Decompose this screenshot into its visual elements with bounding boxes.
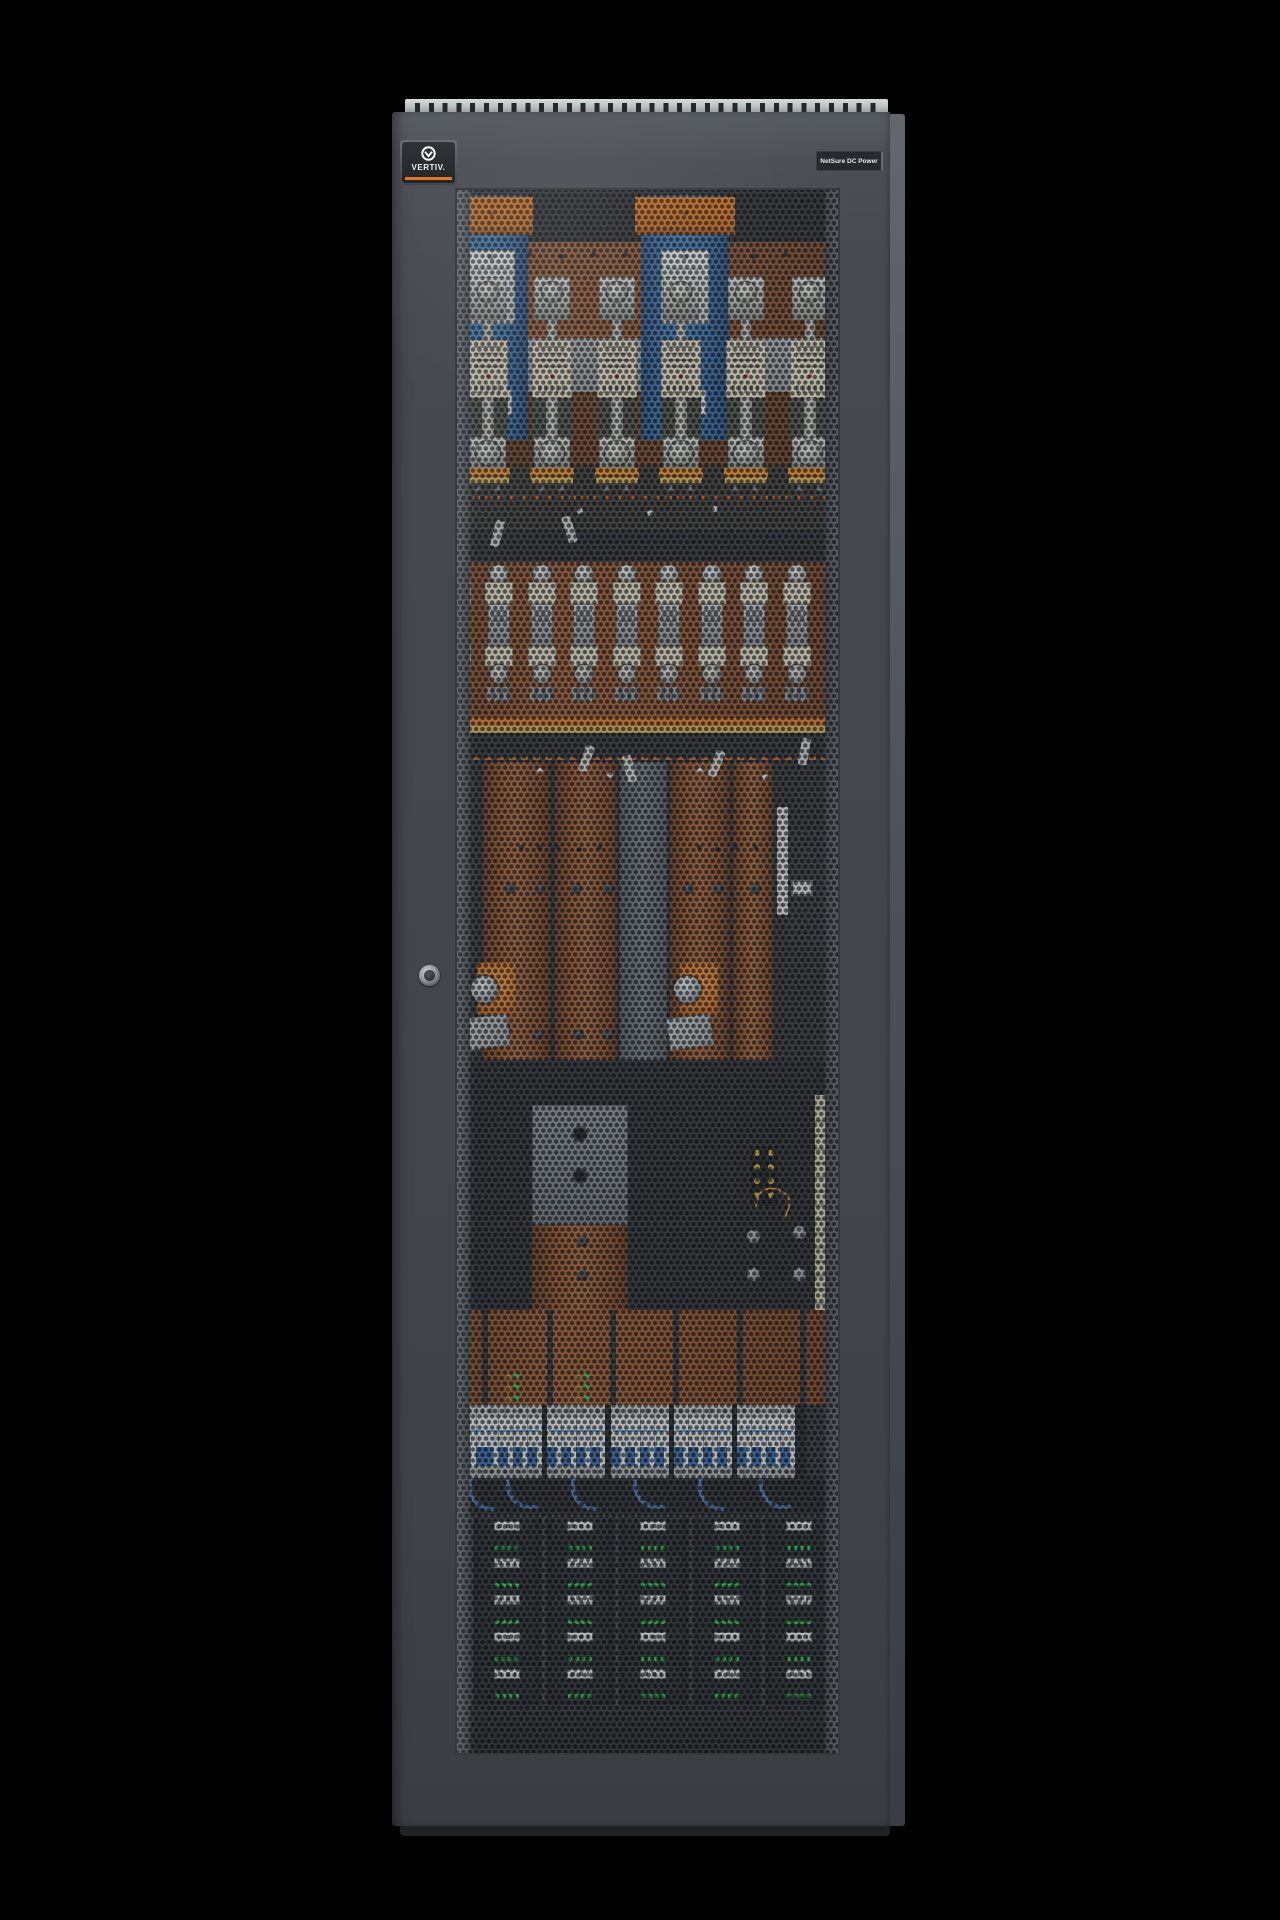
terminal-dot — [754, 1164, 760, 1170]
interior-band — [457, 530, 838, 562]
cover-hole — [574, 1128, 586, 1140]
distribution-fuse — [482, 565, 516, 707]
terminal-bolt — [816, 485, 823, 492]
fuse-blade — [612, 320, 622, 342]
panel-dot — [591, 252, 596, 257]
fuse-holder-top — [613, 582, 641, 604]
bracket — [791, 880, 813, 896]
rectifier-module — [625, 1592, 681, 1628]
fuse-lower-blade — [532, 398, 572, 442]
rectifier-module — [625, 1518, 681, 1554]
rectifier-handle — [494, 1558, 520, 1568]
fuse-holder-bottom — [528, 646, 556, 666]
fuse-blade — [741, 320, 751, 342]
rectifier-module — [479, 1666, 535, 1702]
panel-dot — [577, 847, 582, 852]
battery-terminal-bracket — [463, 1013, 511, 1051]
terminal-dot — [768, 1178, 774, 1184]
indicator-cluster — [506, 1372, 511, 1405]
interior-band — [457, 733, 838, 757]
rectifier-module — [699, 1555, 755, 1591]
rail-holes — [415, 103, 878, 112]
distribution-fuse — [652, 565, 686, 707]
panel-dot — [733, 845, 738, 850]
busbar-bolt — [577, 1236, 588, 1247]
fuse-top-screw — [788, 565, 806, 583]
panel-dot — [753, 845, 758, 850]
terminal-bolt — [752, 485, 759, 492]
fuse-terminal — [785, 687, 809, 701]
screw-speck — [762, 774, 768, 780]
breaker-group — [674, 1405, 732, 1478]
model-label: NetSure DC Power — [816, 151, 883, 171]
rack-rail-right — [825, 190, 838, 1753]
rectifier-handle — [714, 1595, 740, 1605]
breaker-group — [737, 1405, 795, 1478]
distribution-fuse — [567, 565, 601, 707]
fuse-terminal-lip — [596, 477, 638, 483]
terminal-bolt — [796, 485, 803, 492]
panel-dot — [751, 254, 756, 259]
rectifier-led-strip — [639, 1619, 667, 1625]
fuse-terminal — [615, 687, 639, 701]
terminal-bolt — [494, 485, 501, 492]
distribution-fuse — [610, 565, 644, 707]
rectifier-led-strip — [713, 1582, 741, 1588]
busbar-bolt — [683, 883, 694, 894]
fuse-terminal-lip — [725, 477, 767, 483]
fuse-body — [573, 604, 595, 646]
rectifier-handle — [640, 1595, 666, 1605]
rectifier-handle — [640, 1632, 666, 1642]
fuse-lower-blade — [597, 398, 637, 442]
rectifier-led-strip — [566, 1693, 594, 1699]
rectifier-module — [552, 1518, 608, 1554]
screw-speck — [577, 508, 583, 514]
fuse-label — [726, 340, 766, 398]
cabinet-base — [400, 1826, 890, 1836]
fuse-holder-top — [528, 582, 556, 604]
panel-dot — [715, 847, 720, 852]
terminal-bolt — [623, 485, 630, 492]
nh-fuse — [724, 277, 768, 497]
distribution-fuse — [525, 565, 559, 707]
panel-dot — [519, 845, 524, 850]
shunt-orange-cap — [635, 197, 735, 235]
rectifier-handle — [640, 1669, 666, 1679]
fuse-lower-blade — [468, 398, 508, 442]
rectifier-module — [552, 1666, 608, 1702]
fuse-label — [661, 340, 701, 398]
terminal-dot — [754, 1150, 760, 1156]
rectifier-module — [699, 1666, 755, 1702]
fuse-label — [468, 340, 508, 398]
fuse-blade — [676, 320, 686, 342]
fuse-bottom-screw — [575, 665, 593, 683]
rectifier-module — [552, 1629, 608, 1665]
nh-fuse — [530, 277, 574, 497]
rectifier-led-strip — [639, 1693, 667, 1699]
rectifier-module — [552, 1555, 608, 1591]
terminal-bolt — [603, 485, 610, 492]
indicator-cluster — [576, 1372, 581, 1405]
rectifier-handle — [786, 1558, 812, 1568]
fuse-terminal — [530, 687, 554, 701]
battery-terminal-bolt — [674, 976, 701, 1003]
rack-rail-left — [457, 190, 470, 1753]
cable-channel — [620, 762, 667, 1060]
rectifier-led-strip — [785, 1545, 813, 1551]
fuse-terminal — [572, 687, 596, 701]
door-mesh-window — [457, 190, 838, 1753]
fuse-body — [658, 604, 680, 646]
terminal-bolt — [732, 485, 739, 492]
badge-accent-bar — [405, 177, 452, 180]
fuse-top-screw — [618, 565, 636, 583]
rectifier-led-strip — [639, 1582, 667, 1588]
breaker-group — [547, 1405, 605, 1478]
fuse-lower-blade — [661, 398, 701, 442]
busbar-divider — [482, 1310, 488, 1405]
fuse-holder-top — [698, 582, 726, 604]
fuse-holder-bottom — [740, 646, 768, 666]
fuse-label — [790, 340, 830, 398]
rectifier-led-strip — [566, 1582, 594, 1588]
rectifier-handle — [567, 1521, 593, 1531]
fuse-lower-blade — [790, 398, 830, 442]
fuse-holder-bottom — [783, 646, 811, 666]
cover-hole — [574, 1170, 586, 1182]
rectifier-module — [699, 1518, 755, 1554]
distribution-fuse — [780, 565, 814, 707]
busbar-bolt — [577, 1270, 588, 1281]
battery-terminal-bracket — [666, 1013, 714, 1051]
nh-fuse — [466, 277, 510, 497]
fuse-terminal-base — [595, 468, 639, 477]
cabinet-side-panel — [888, 114, 905, 1826]
rectifier-handle — [640, 1558, 666, 1568]
panel-dot — [597, 845, 602, 850]
rectifier-led-strip — [713, 1545, 741, 1551]
rectifier-led-strip — [566, 1619, 594, 1625]
fuse-bottom-screw — [703, 665, 721, 683]
nh-fuse — [595, 277, 639, 497]
rectifier-handle — [714, 1632, 740, 1642]
panel-dot — [559, 254, 564, 259]
wire-run — [461, 757, 833, 760]
rectifier-handle — [640, 1521, 666, 1531]
rectifier-led-strip — [493, 1693, 521, 1699]
screw-speck — [537, 768, 543, 774]
fuse-top-screw — [575, 565, 593, 583]
busbar-divider — [547, 1310, 553, 1405]
fuse-bottom-screw — [533, 665, 551, 683]
fuse-label — [597, 340, 637, 398]
busbar-bolt — [750, 883, 761, 894]
fuse-top-screw — [745, 565, 763, 583]
panel-screw — [747, 1230, 760, 1243]
fuse-bottom-screw — [669, 441, 693, 465]
fuse-holder-bottom — [655, 646, 683, 666]
fuse-blade — [805, 320, 815, 342]
fuse-holder-top — [485, 582, 513, 604]
fuse-bottom-screw — [734, 441, 758, 465]
rectifier-led-strip — [566, 1545, 594, 1551]
panel-dot — [537, 845, 542, 850]
rectifier-module — [625, 1629, 681, 1665]
rectifier-led-strip — [639, 1545, 667, 1551]
fuse-terminal — [487, 687, 511, 701]
scene: VERTIV. NetSure DC Power — [0, 0, 1280, 1920]
rectifier-led-strip — [785, 1693, 813, 1699]
rectifier-led-strip — [493, 1582, 521, 1588]
rectifier-handle — [786, 1669, 812, 1679]
fuse-top-screw — [607, 282, 627, 302]
breaker-group — [484, 1405, 542, 1478]
rectifier-handle — [494, 1595, 520, 1605]
fuse-holder-top — [783, 582, 811, 604]
cabinet-interior — [457, 190, 838, 1753]
vertical-busbar — [555, 762, 617, 1060]
rectifier-handle — [786, 1595, 812, 1605]
rectifier-handle — [494, 1521, 520, 1531]
panel-dot — [555, 845, 560, 850]
fuse-holder-bottom — [698, 646, 726, 666]
fuse-terminal-base — [659, 468, 703, 477]
busbar-bolt — [535, 883, 546, 894]
rectifier-led-strip — [785, 1619, 813, 1625]
fuse-body — [743, 604, 765, 646]
fuse-bottom-screw — [540, 441, 564, 465]
fuse-blade — [547, 320, 557, 342]
fuse-holder-top — [740, 582, 768, 604]
fuse-terminal-base — [530, 468, 574, 477]
fuse-blade — [483, 320, 493, 342]
busbar-divider — [737, 1310, 743, 1405]
fuse-top-screw — [736, 282, 756, 302]
breaker-group — [611, 1405, 669, 1478]
rectifier-handle — [494, 1632, 520, 1642]
busbar-bolt — [571, 883, 582, 894]
screw-speck — [607, 772, 613, 778]
busbar-divider — [673, 1310, 679, 1405]
rectifier-handle — [786, 1521, 812, 1531]
terminal-dot — [768, 1150, 774, 1156]
rectifier-module — [771, 1592, 827, 1628]
terminal-bolt — [687, 485, 694, 492]
terminal-bolt — [558, 485, 565, 492]
screw-speck — [647, 510, 653, 516]
shelf-divider — [542, 1515, 546, 1705]
busbar-divider — [800, 1310, 806, 1405]
din-rail — [777, 807, 788, 915]
vertiv-logo-icon — [421, 146, 436, 161]
rectifier-handle — [714, 1669, 740, 1679]
fuse-top-screw — [542, 282, 562, 302]
busbar-bolt — [573, 1029, 584, 1040]
fuse-bottom-screw — [660, 665, 678, 683]
fuse-body — [531, 604, 553, 646]
rectifier-module — [699, 1592, 755, 1628]
fuse-body — [616, 604, 638, 646]
fuse-terminal — [657, 687, 681, 701]
panel-screw — [793, 1268, 806, 1281]
rectifier-handle — [786, 1632, 812, 1642]
vertiv-wordmark: VERTIV. — [412, 163, 446, 172]
shelf-divider — [689, 1515, 693, 1705]
busbar-bolt — [505, 883, 516, 894]
fuse-terminal-base — [724, 468, 768, 477]
panel-screw — [747, 1268, 760, 1281]
busbar-bolt — [603, 883, 614, 894]
rectifier-module — [479, 1592, 535, 1628]
rectifier-led-strip — [713, 1619, 741, 1625]
door-lock — [419, 965, 440, 986]
rectifier-led-strip — [493, 1545, 521, 1551]
panel-dot — [697, 845, 702, 850]
distribution-fuse — [695, 565, 729, 707]
bus-link-strip — [457, 718, 838, 726]
terminal-dot — [754, 1178, 760, 1184]
rectifier-handle — [494, 1669, 520, 1679]
rectifier-module — [771, 1666, 827, 1702]
panel-dot — [623, 252, 628, 257]
bus-link-strip — [457, 726, 838, 733]
fuse-holder-top — [655, 582, 683, 604]
fuse-bottom-screw — [490, 665, 508, 683]
terminal-bolt — [474, 485, 481, 492]
rectifier-module — [479, 1629, 535, 1665]
rectifier-led-strip — [566, 1656, 594, 1662]
fuse-top-screw — [800, 282, 820, 302]
fuse-bottom-screw — [788, 665, 806, 683]
rectifier-module — [771, 1629, 827, 1665]
screw-speck — [712, 506, 718, 512]
fuse-holder-bottom — [485, 646, 513, 666]
panel-screw — [793, 1226, 806, 1239]
model-label-text: NetSure DC Power — [820, 158, 877, 165]
rectifier-module — [552, 1592, 608, 1628]
interior-bottom — [457, 1705, 838, 1753]
busbar-bolt — [533, 1029, 544, 1040]
rectifier-led-strip — [713, 1693, 741, 1699]
fuse-body — [488, 604, 510, 646]
fuse-terminal-lip — [467, 477, 509, 483]
rectifier-handle — [567, 1558, 593, 1568]
rectifier-module — [625, 1666, 681, 1702]
fuse-top-screw — [490, 565, 508, 583]
rectifier-module — [699, 1629, 755, 1665]
rectifier-module — [479, 1555, 535, 1591]
terminal-dot — [768, 1164, 774, 1170]
rectifier-module — [479, 1518, 535, 1554]
fuse-holder-bottom — [613, 646, 641, 666]
shelf-divider — [615, 1515, 619, 1705]
fuse-terminal — [742, 687, 766, 701]
fuse-terminal-lip — [531, 477, 573, 483]
terminal-bolt — [667, 485, 674, 492]
fuse-body — [701, 604, 723, 646]
fuse-terminal-lip — [660, 477, 702, 483]
rectifier-led-strip — [493, 1619, 521, 1625]
rectifier-module — [625, 1555, 681, 1591]
fuse-bottom-screw — [618, 665, 636, 683]
fuse-bottom-screw — [745, 665, 763, 683]
rectifier-module — [771, 1555, 827, 1591]
battery-terminal-bolt — [471, 976, 498, 1003]
rectifier-led-strip — [713, 1656, 741, 1662]
rectifier-handle — [567, 1632, 593, 1642]
fuse-top-screw — [671, 282, 691, 302]
fuse-top-screw — [703, 565, 721, 583]
busbar-bolt — [603, 1029, 614, 1040]
fuse-holder-bottom — [570, 646, 598, 666]
rectifier-led-strip — [785, 1656, 813, 1662]
nh-fuse — [659, 277, 703, 497]
vertiv-badge: VERTIV. — [400, 140, 457, 185]
fuse-bottom-screw — [605, 441, 629, 465]
fuse-top-screw — [478, 282, 498, 302]
rectifier-handle — [567, 1595, 593, 1605]
shelf-divider — [761, 1515, 765, 1705]
busbar-divider — [610, 1310, 616, 1405]
fuse-lower-blade — [726, 398, 766, 442]
fuse-terminal-base — [466, 468, 510, 477]
rectifier-led-strip — [493, 1656, 521, 1662]
rectifier-led-strip — [785, 1582, 813, 1588]
distribution-fuse — [737, 565, 771, 707]
fuse-bottom-screw — [476, 441, 500, 465]
fuse-holder-top — [570, 582, 598, 604]
fuse-terminal — [700, 687, 724, 701]
terminal-bolt — [538, 485, 545, 492]
rectifier-handle — [714, 1521, 740, 1531]
busbar-bolt — [713, 883, 724, 894]
fuse-label — [532, 340, 572, 398]
cover-panel — [532, 1105, 628, 1225]
wire-run — [461, 496, 833, 499]
rectifier-handle — [567, 1669, 593, 1679]
rectifier-handle — [714, 1558, 740, 1568]
fuse-bottom-screw — [798, 441, 822, 465]
rectifier-module — [771, 1518, 827, 1554]
rectifier-led-strip — [639, 1656, 667, 1662]
fuse-top-screw — [533, 565, 551, 583]
fuse-top-screw — [660, 565, 678, 583]
fuse-body — [786, 604, 808, 646]
vertical-busbar — [733, 762, 773, 1060]
panel-dot — [783, 252, 788, 257]
screw-speck — [697, 768, 703, 774]
